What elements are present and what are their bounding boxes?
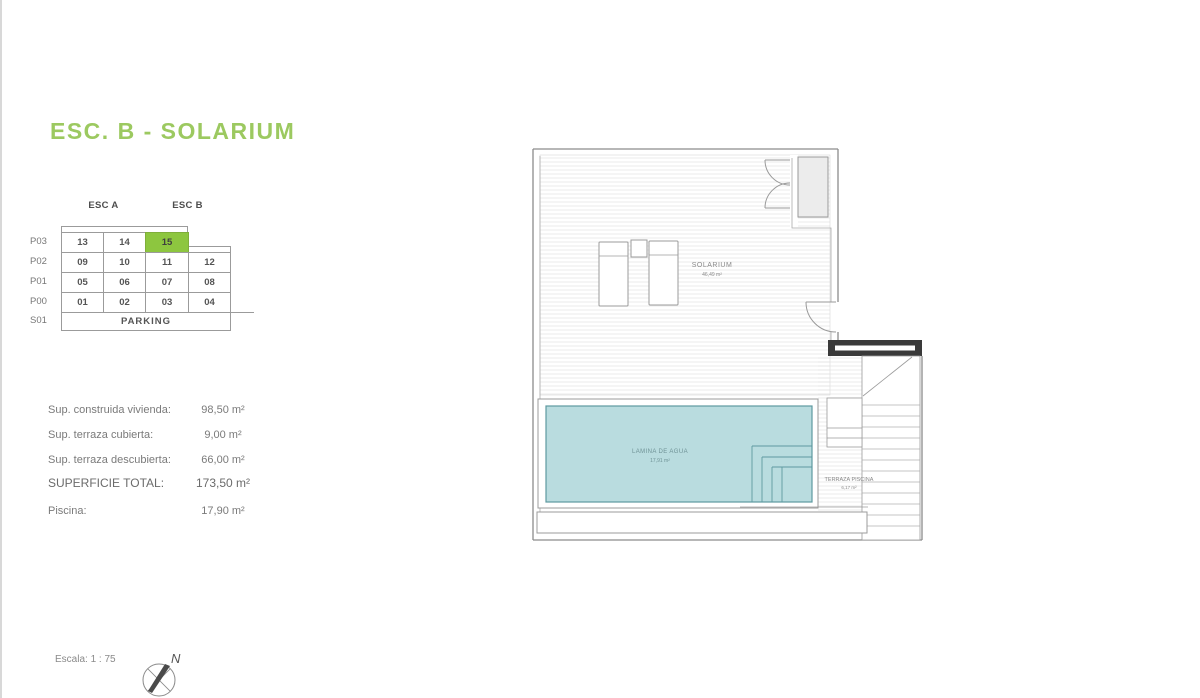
unit-cell: 07 — [145, 272, 189, 293]
area-row: Sup. construida vivienda: 98,50 m² — [48, 404, 268, 416]
area-value: 9,00 m² — [178, 429, 268, 441]
pool-area: 17,91 m² — [650, 458, 670, 464]
ground-line — [230, 312, 254, 313]
compass-needle — [148, 664, 170, 693]
pool-terrace-label: TERRAZA PISCINA — [825, 477, 874, 483]
unit-cell: 09 — [61, 252, 104, 273]
lower-terrace-band — [537, 512, 867, 533]
area-label: Piscina: — [48, 505, 178, 517]
solarium-area: 46,49 m² — [702, 272, 722, 278]
pool-bench — [827, 398, 862, 447]
unit-cell: 11 — [145, 252, 189, 273]
section-wall-core — [835, 346, 915, 351]
page-title: ESC. B - SOLARIUM — [50, 118, 295, 145]
unit-cell: 02 — [103, 292, 146, 313]
interior-gap — [790, 155, 798, 228]
lounger — [649, 241, 678, 305]
area-label: Sup. terraza cubierta: — [48, 429, 178, 441]
area-value: 17,90 m² — [178, 505, 268, 517]
pool-terrace-area: 6,17 m² — [841, 485, 857, 490]
unit-cell: 14 — [103, 232, 146, 253]
unit-cell: 05 — [61, 272, 104, 293]
lounger — [599, 242, 628, 306]
area-row: Sup. terraza cubierta: 9,00 m² — [48, 429, 268, 441]
area-label: Sup. terraza descubierta: — [48, 454, 178, 466]
row-label-p03: P03 — [30, 236, 56, 247]
area-row: Piscina: 17,90 m² — [48, 505, 268, 517]
north-arrow: N — [138, 650, 188, 698]
area-value: 98,50 m² — [178, 404, 268, 416]
unit-cell-highlighted: 15 — [145, 232, 189, 253]
row-label-p02: P02 — [30, 256, 56, 267]
row-label-p01: P01 — [30, 276, 56, 287]
side-table — [631, 240, 647, 257]
matrix-header-esc-b: ESC B — [145, 200, 230, 212]
north-letter: N — [171, 651, 181, 666]
scale-label: Escala: 1 : 75 — [55, 654, 116, 665]
unit-cell: 01 — [61, 292, 104, 313]
unit-cell: 08 — [188, 272, 231, 293]
solarium-label: SOLARIUM — [692, 262, 733, 269]
unit-cell: 13 — [61, 232, 104, 253]
unit-cell: 04 — [188, 292, 231, 313]
matrix-header-esc-a: ESC A — [61, 200, 146, 212]
unit-cell: 10 — [103, 252, 146, 273]
area-label: Sup. construida vivienda: — [48, 404, 178, 416]
stair-bulkhead — [798, 157, 828, 217]
row-label-s01: S01 — [30, 315, 56, 326]
stair — [862, 356, 920, 540]
unit-cell: 03 — [145, 292, 189, 313]
area-row: Sup. terraza descubierta: 66,00 m² — [48, 454, 268, 466]
solarium-deck-hatch — [540, 155, 830, 395]
area-label: SUPERFICIE TOTAL: — [48, 476, 178, 490]
area-row-total: SUPERFICIE TOTAL: 173,50 m² — [48, 476, 268, 490]
area-value: 173,50 m² — [178, 476, 268, 490]
pool-label: LAMINA DE AGUA — [632, 449, 688, 455]
unit-matrix: ESC A ESC B P03 P02 P01 P00 S01 13 14 15… — [30, 200, 330, 340]
row-label-p00: P00 — [30, 296, 56, 307]
unit-cell: 06 — [103, 272, 146, 293]
area-value: 66,00 m² — [178, 454, 268, 466]
page-left-edge — [0, 0, 2, 698]
unit-cell: 12 — [188, 252, 231, 273]
parking-cell: PARKING — [61, 312, 231, 331]
floor-plan: SOLARIUM 46,49 m² LAMINA DE AGUA 17,91 m… — [525, 140, 935, 550]
